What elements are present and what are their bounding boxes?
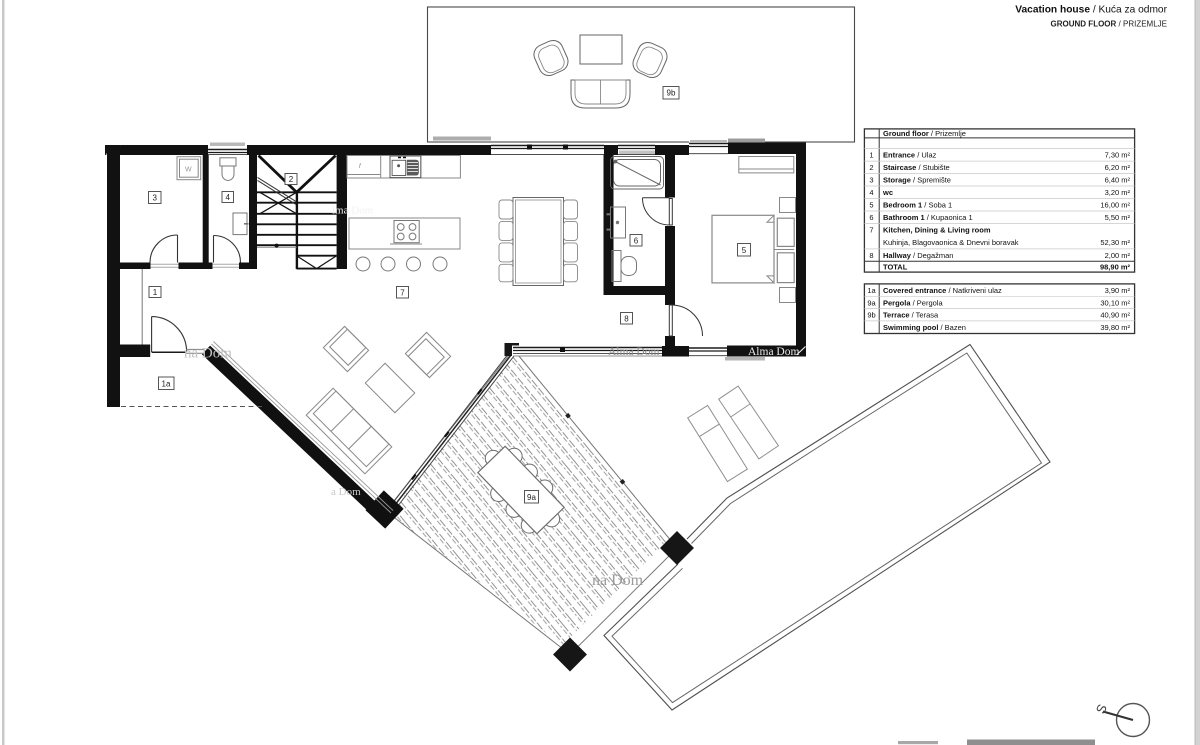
svg-text:Alma Dom: Alma Dom	[608, 346, 659, 358]
svg-text:2,00 m²: 2,00 m²	[1105, 251, 1131, 260]
svg-text:GROUND FLOOR / PRIZEMLJE: GROUND FLOOR / PRIZEMLJE	[1051, 20, 1167, 29]
svg-text:6: 6	[634, 237, 639, 246]
svg-text:lma Dom: lma Dom	[332, 205, 374, 217]
svg-text:4: 4	[225, 193, 230, 202]
svg-text:9b: 9b	[867, 311, 875, 320]
svg-text:na Dom: na Dom	[184, 346, 232, 362]
svg-text:1a: 1a	[162, 380, 171, 389]
svg-text:7,30 m²: 7,30 m²	[1105, 151, 1131, 160]
svg-text:Terrace / Terasa: Terrace / Terasa	[883, 311, 939, 320]
svg-text:Ground floor / Prizemlje: Ground floor / Prizemlje	[883, 129, 966, 138]
svg-text:TOTAL: TOTAL	[883, 262, 908, 271]
svg-text:3,90 m²: 3,90 m²	[1105, 286, 1131, 295]
svg-text:16,00 m²: 16,00 m²	[1100, 200, 1130, 209]
svg-text:Bedroom 1 / Soba 1: Bedroom 1 / Soba 1	[883, 200, 952, 209]
svg-text:wc: wc	[882, 188, 893, 197]
svg-text:4: 4	[869, 188, 873, 197]
svg-text:Bathroom 1 / Kupaonica 1: Bathroom 1 / Kupaonica 1	[883, 213, 973, 222]
svg-text:6: 6	[869, 213, 873, 222]
svg-text:3: 3	[152, 194, 157, 203]
svg-text:9a: 9a	[527, 493, 536, 502]
svg-text:Staircase / Stubište: Staircase / Stubište	[883, 163, 950, 172]
svg-text:Swimming pool / Bazen: Swimming pool / Bazen	[883, 323, 966, 332]
svg-text:7: 7	[869, 226, 873, 235]
svg-text:40,90 m²: 40,90 m²	[1100, 311, 1130, 320]
svg-text:1: 1	[869, 151, 873, 160]
svg-text:8: 8	[624, 315, 629, 324]
svg-text:6,40 m²: 6,40 m²	[1105, 175, 1131, 184]
svg-text:Alma Dom: Alma Dom	[748, 346, 799, 358]
svg-text:W: W	[185, 167, 192, 174]
svg-text:39,80 m²: 39,80 m²	[1100, 323, 1130, 332]
svg-text:3,20 m²: 3,20 m²	[1105, 188, 1131, 197]
svg-text:2: 2	[869, 163, 873, 172]
svg-text:30,10 m²: 30,10 m²	[1100, 298, 1130, 307]
svg-text:a Dom: a Dom	[331, 486, 361, 498]
svg-text:9a: 9a	[867, 298, 876, 307]
svg-text:Covered entrance / Natkriveni: Covered entrance / Natkriveni ulaz	[883, 286, 1002, 295]
svg-text:5,50 m²: 5,50 m²	[1105, 213, 1131, 222]
svg-text:98,90 m²: 98,90 m²	[1100, 262, 1131, 271]
svg-text:52,30 m²: 52,30 m²	[1100, 238, 1130, 247]
svg-text:3: 3	[869, 175, 873, 184]
svg-text:1a: 1a	[867, 286, 876, 295]
svg-text:Pergola / Pergola: Pergola / Pergola	[883, 298, 943, 307]
svg-text:8: 8	[869, 251, 873, 260]
svg-text:Hallway / Degažman: Hallway / Degažman	[883, 251, 953, 260]
svg-text:na Dom: na Dom	[592, 572, 644, 589]
svg-text:5: 5	[742, 246, 747, 255]
svg-text:9b: 9b	[667, 89, 676, 98]
svg-text:Storage / Spremište: Storage / Spremište	[883, 175, 951, 184]
svg-text:5: 5	[869, 200, 873, 209]
svg-text:Vacation house / Kuća za odmor: Vacation house / Kuća za odmor	[1015, 5, 1167, 16]
svg-text:1: 1	[153, 288, 158, 297]
svg-text:7: 7	[400, 289, 405, 298]
svg-text:2: 2	[289, 175, 294, 184]
svg-text:Kitchen, Dining & Living room: Kitchen, Dining & Living room	[883, 226, 991, 235]
svg-text:6,20 m²: 6,20 m²	[1105, 163, 1131, 172]
svg-text:Kuhinja, Blagovaonica & Dnevni: Kuhinja, Blagovaonica & Dnevni boravak	[883, 238, 1019, 247]
svg-text:Entrance / Ulaz: Entrance / Ulaz	[883, 151, 937, 160]
